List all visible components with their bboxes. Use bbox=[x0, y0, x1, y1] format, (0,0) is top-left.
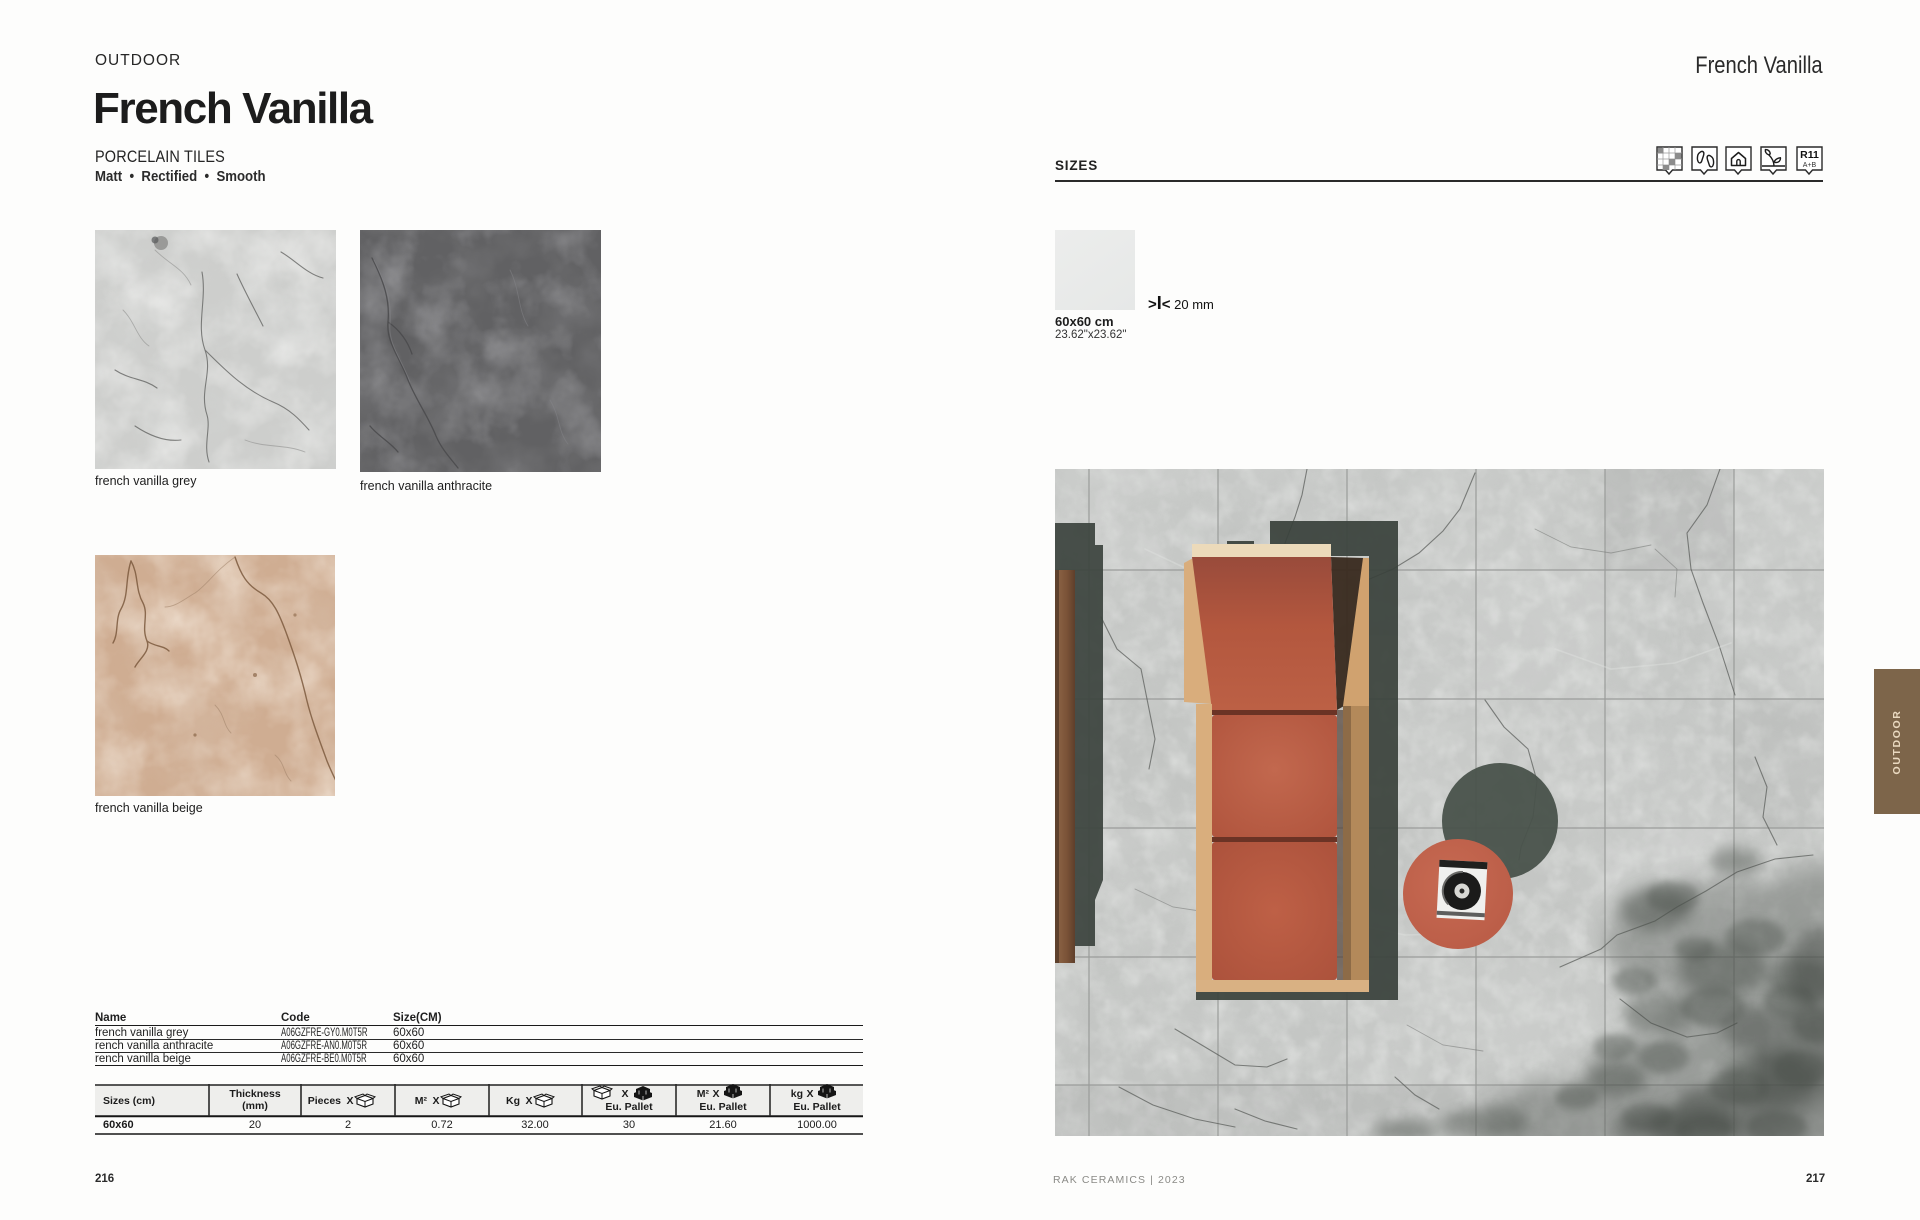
svg-text:kg: kg bbox=[791, 1088, 803, 1100]
svg-text:X: X bbox=[621, 1088, 628, 1100]
svg-text:Eu. Pallet: Eu. Pallet bbox=[699, 1101, 747, 1113]
svg-text:X: X bbox=[432, 1095, 439, 1107]
svg-text:X: X bbox=[712, 1088, 719, 1100]
svg-text:Kg: Kg bbox=[506, 1095, 520, 1107]
svg-text:2: 2 bbox=[345, 1119, 351, 1131]
svg-text:Eu. Pallet: Eu. Pallet bbox=[793, 1101, 841, 1113]
svg-text:20: 20 bbox=[249, 1119, 261, 1131]
svg-text:0.72: 0.72 bbox=[431, 1119, 452, 1131]
svg-text:X: X bbox=[525, 1095, 532, 1107]
svg-text:30: 30 bbox=[623, 1119, 635, 1131]
svg-text:32.00: 32.00 bbox=[521, 1119, 549, 1131]
svg-text:R11: R11 bbox=[1800, 149, 1819, 161]
svg-text:X: X bbox=[806, 1088, 813, 1100]
svg-text:Sizes (cm): Sizes (cm) bbox=[103, 1095, 155, 1107]
svg-text:Pieces: Pieces bbox=[308, 1095, 341, 1107]
svg-text:X: X bbox=[346, 1095, 353, 1107]
svg-text:A+B: A+B bbox=[1803, 162, 1817, 169]
svg-text:21.60: 21.60 bbox=[709, 1119, 737, 1131]
svg-text:60x60: 60x60 bbox=[103, 1119, 134, 1131]
svg-text:Thickness: Thickness bbox=[229, 1088, 281, 1100]
svg-text:Eu. Pallet: Eu. Pallet bbox=[605, 1101, 653, 1113]
svg-text:1000.00: 1000.00 bbox=[797, 1119, 837, 1131]
svg-text:M²: M² bbox=[415, 1095, 428, 1107]
svg-text:(mm): (mm) bbox=[242, 1100, 268, 1112]
svg-text:M²: M² bbox=[697, 1088, 710, 1100]
